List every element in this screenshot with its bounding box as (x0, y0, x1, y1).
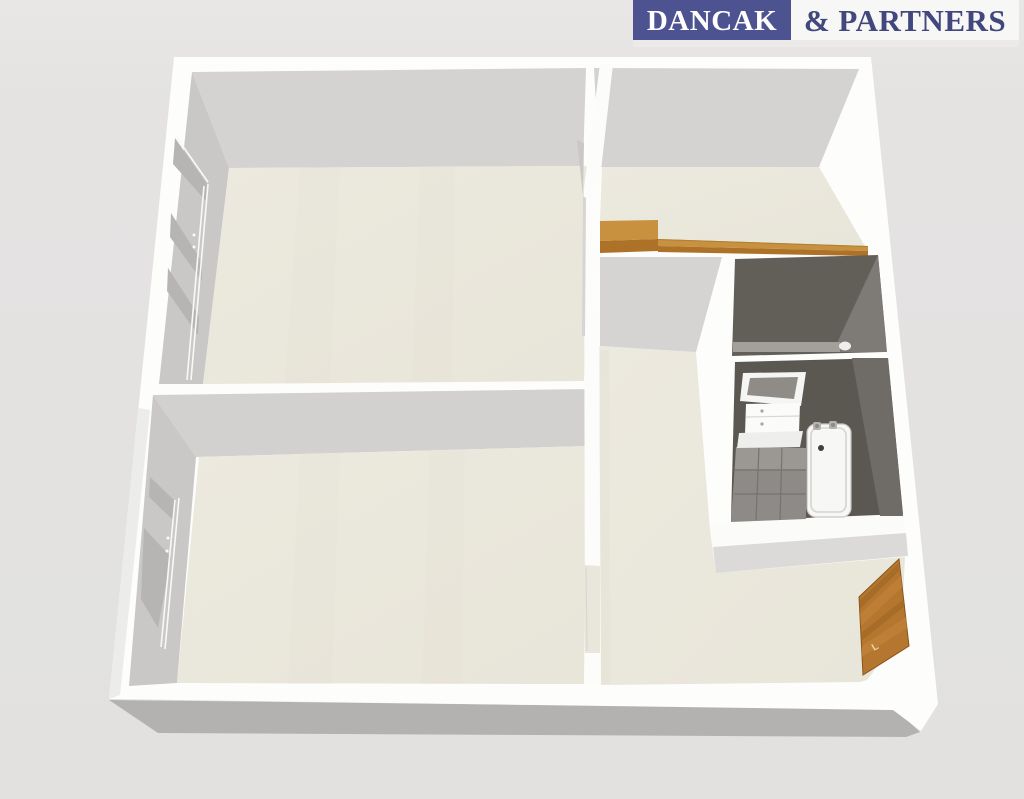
svg-text:DANCAK: DANCAK (647, 5, 777, 37)
svg-text:& PARTNERS: & PARTNERS (804, 3, 1006, 38)
